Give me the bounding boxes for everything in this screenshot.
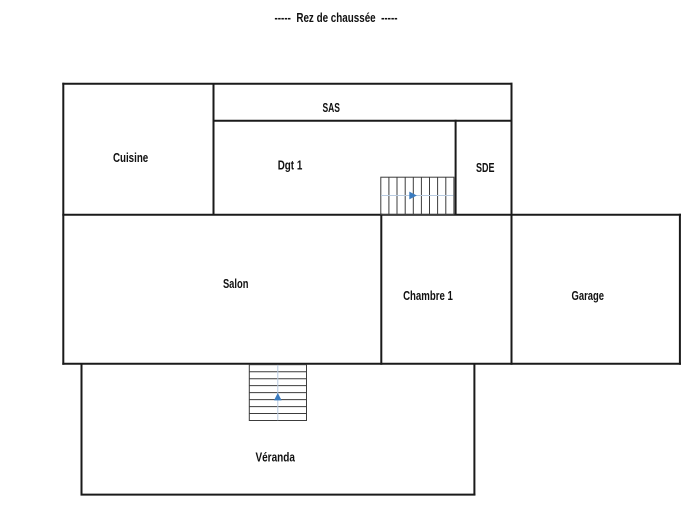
svg-text:Dgt 1: Dgt 1 — [278, 157, 303, 172]
svg-text:Cuisine: Cuisine — [113, 150, 148, 165]
svg-text:Garage: Garage — [572, 288, 605, 303]
svg-text:SAS: SAS — [322, 100, 340, 115]
svg-text:Véranda: Véranda — [255, 450, 295, 465]
svg-text:SDE: SDE — [476, 160, 495, 175]
svg-text:Chambre 1: Chambre 1 — [403, 288, 453, 303]
svg-text:Salon: Salon — [223, 276, 249, 291]
svg-text:----- Rez de chaussée -----: ----- Rez de chaussée ----- — [275, 10, 398, 25]
